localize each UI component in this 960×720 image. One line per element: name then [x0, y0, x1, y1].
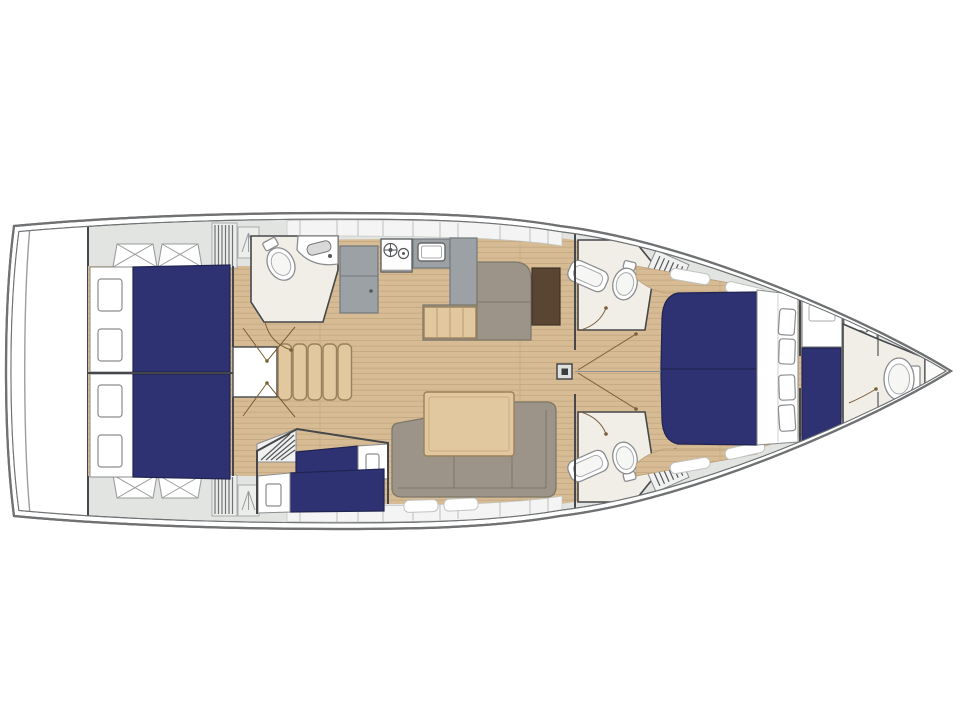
interior — [4, 218, 951, 522]
engine-box — [233, 347, 277, 397]
pillow — [779, 375, 796, 401]
swim-platform — [4, 218, 88, 522]
double-berth — [133, 374, 230, 479]
galley-counter — [450, 238, 477, 312]
refrigerator — [340, 246, 378, 313]
pillow — [266, 484, 281, 506]
louver-vent — [212, 223, 237, 268]
double-berth — [133, 265, 230, 372]
saloon-table — [424, 392, 514, 456]
stove-icon — [381, 239, 412, 272]
chart-table — [532, 268, 560, 325]
wood-bench — [424, 307, 476, 338]
single-berth-lower — [290, 469, 384, 512]
companionway-steps — [278, 344, 352, 400]
pillow — [98, 329, 122, 361]
pillow — [778, 404, 796, 431]
pillow — [779, 339, 796, 365]
yacht-layout-plan — [0, 0, 960, 720]
pillow — [98, 279, 122, 311]
faucet-icon — [328, 254, 332, 258]
pillow — [778, 308, 796, 335]
fridge-handle — [369, 289, 373, 293]
platform-surface — [4, 218, 88, 522]
aft-cabin-starboard — [88, 373, 233, 479]
pillow — [98, 435, 122, 467]
aft-cabin-port — [90, 265, 230, 372]
louver-vent — [212, 475, 237, 516]
layout-drawing — [0, 0, 960, 720]
pillow — [98, 385, 122, 417]
hull-window — [404, 499, 438, 512]
hull-window — [444, 498, 479, 512]
